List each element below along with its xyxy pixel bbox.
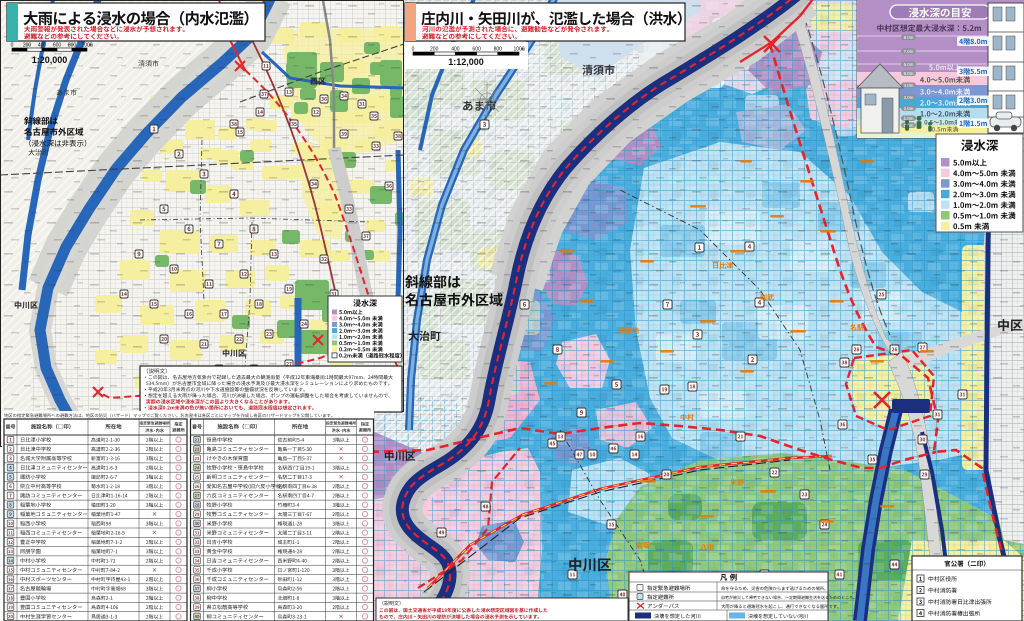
svg-text:0: 0 <box>11 43 14 49</box>
svg-text:0: 0 <box>412 47 415 53</box>
svg-text:5.0m: 5.0m <box>904 71 914 76</box>
svg-text:m: m <box>521 47 525 52</box>
svg-text:6.0m: 6.0m <box>904 62 914 67</box>
svg-text:m: m <box>89 43 93 48</box>
svg-text:200: 200 <box>430 47 439 53</box>
svg-text:600: 600 <box>472 47 481 53</box>
svg-text:800: 800 <box>494 47 503 53</box>
svg-text:2.0m: 2.0m <box>904 106 914 111</box>
svg-text:7.0m: 7.0m <box>904 49 914 54</box>
svg-text:8.0m: 8.0m <box>904 35 914 40</box>
svg-text:200: 200 <box>23 43 32 49</box>
svg-text:400: 400 <box>451 47 460 53</box>
svg-text:3.0m: 3.0m <box>904 95 914 100</box>
svg-text:1:20,000: 1:20,000 <box>32 55 68 65</box>
svg-text:400: 400 <box>38 43 47 49</box>
svg-text:600: 600 <box>53 43 62 49</box>
svg-text:1:12,000: 1:12,000 <box>448 57 484 67</box>
svg-text:1.0m: 1.0m <box>904 116 914 121</box>
svg-text:800: 800 <box>68 43 77 49</box>
svg-text:4.0m: 4.0m <box>904 83 914 88</box>
